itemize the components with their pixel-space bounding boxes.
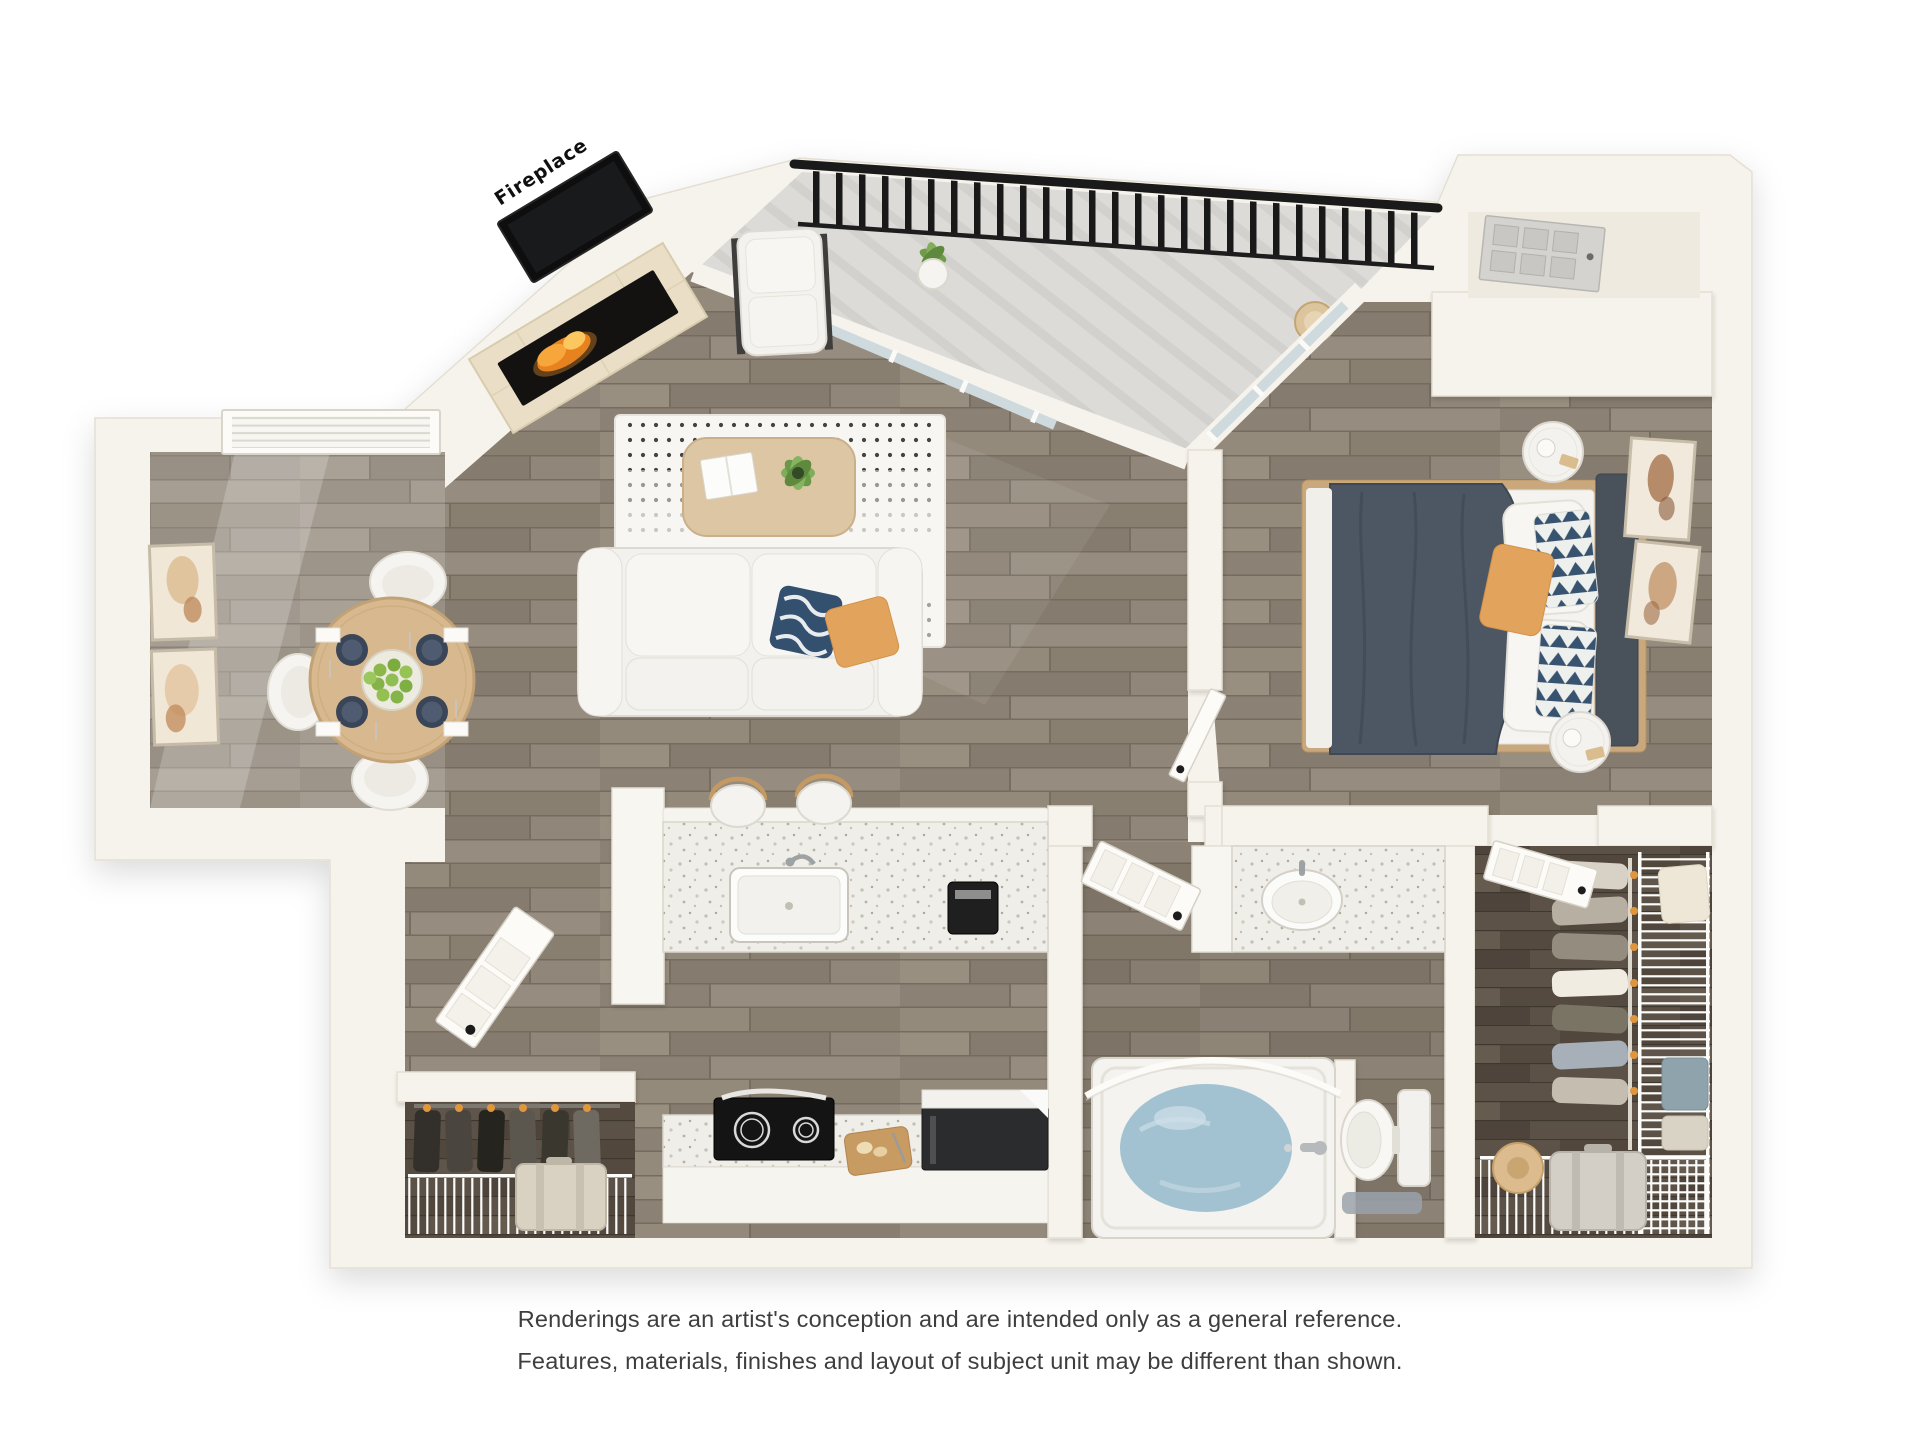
entry-closet-wall: [397, 1072, 635, 1102]
bathtub: [1092, 1058, 1335, 1238]
fridge-handle: [930, 1116, 936, 1164]
lamp: [1563, 729, 1581, 747]
bedroom-top-wall: [1432, 292, 1712, 396]
bedroom-divider-wall: [1188, 450, 1222, 690]
folded-towel: [1658, 864, 1711, 924]
bath-mat: [1342, 1192, 1422, 1214]
tub-drain: [1284, 1144, 1292, 1152]
kitchen-bathroom-wall: [1048, 846, 1082, 1238]
cutting-board: [844, 1126, 913, 1176]
plant-pot: [918, 259, 948, 289]
toilet: [1341, 1090, 1430, 1214]
bedroom-bottom-wall-right: [1598, 806, 1712, 846]
alcove-door: [1479, 216, 1605, 292]
disclaimer-line-2: Features, materials, finishes and layout…: [0, 1348, 1920, 1375]
vanity-faucet: [1299, 860, 1305, 876]
floor-plan-svg: Fireplace: [0, 0, 1920, 1440]
nightstand: [1523, 422, 1583, 482]
sink-drain: [785, 902, 793, 910]
fruit-bowl: [362, 650, 422, 710]
bar-stool: [797, 776, 851, 824]
entry-alcove: [1468, 212, 1700, 298]
bed-sheet: [1306, 488, 1332, 748]
disclaimer: Renderings are an artist's conception an…: [0, 1306, 1920, 1390]
armchair: [731, 228, 833, 357]
dining-table: [310, 598, 474, 762]
suitcase: [1550, 1144, 1646, 1230]
disclaimer-line-1: Renderings are an artist's conception an…: [0, 1306, 1920, 1333]
book: [700, 452, 758, 500]
coffee-table: [683, 438, 855, 536]
suitcase-handle: [1584, 1144, 1612, 1153]
entry-suitcase: [516, 1157, 606, 1230]
coffee-maker: [948, 882, 998, 934]
bed-pillow-patterned: [1535, 624, 1597, 720]
cooktop: [714, 1091, 834, 1160]
window-blinds: [232, 416, 430, 448]
lamp: [1537, 439, 1555, 457]
walk-in-closet: [1475, 840, 1712, 1238]
vanity-cabinet: [1192, 846, 1232, 952]
sofa-arm-left: [578, 548, 622, 716]
floor-plan-rendering: Fireplace: [0, 0, 1920, 1440]
bathroom-top-wall-left: [1048, 806, 1092, 846]
bathroom-top-wall-right: [1205, 806, 1222, 846]
towel-stack: [1662, 1116, 1708, 1150]
bedroom-bottom-wall-left: [1222, 806, 1488, 846]
bar-stool: [711, 779, 765, 827]
entry-closet: [405, 1102, 635, 1238]
bathroom-closet-wall: [1445, 846, 1475, 1238]
nightstand: [1550, 712, 1610, 772]
closet-rod: [1628, 858, 1632, 1150]
towel-stack: [1662, 1058, 1708, 1110]
kitchen-end-panel: [612, 788, 664, 1004]
dining-window: [222, 410, 440, 454]
sofa: [578, 548, 922, 716]
kitchen-sink: [730, 856, 848, 942]
toilet-tank: [1398, 1090, 1430, 1186]
refrigerator: [922, 1090, 1048, 1170]
